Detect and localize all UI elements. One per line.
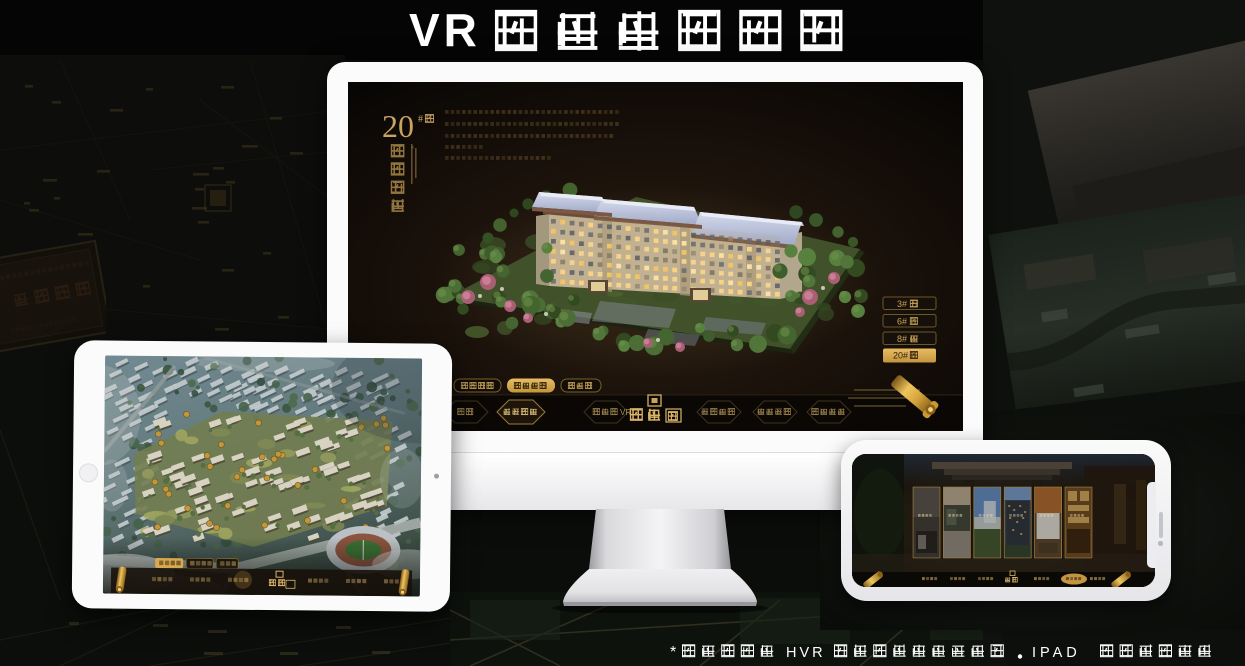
svg-text:HVR: HVR — [786, 645, 826, 661]
svg-text:VR: VR — [409, 4, 481, 56]
svg-text:3#: 3# — [897, 299, 907, 309]
svg-text:20#: 20# — [893, 351, 908, 361]
svg-text:20: 20 — [382, 108, 414, 144]
svg-text:*: * — [670, 644, 676, 661]
svg-text:#: # — [418, 114, 423, 125]
svg-text:IPAD: IPAD — [1032, 645, 1081, 661]
svg-text:8#: 8# — [897, 334, 907, 344]
svg-text:VR: VR — [620, 408, 631, 417]
svg-text:6#: 6# — [897, 317, 907, 327]
